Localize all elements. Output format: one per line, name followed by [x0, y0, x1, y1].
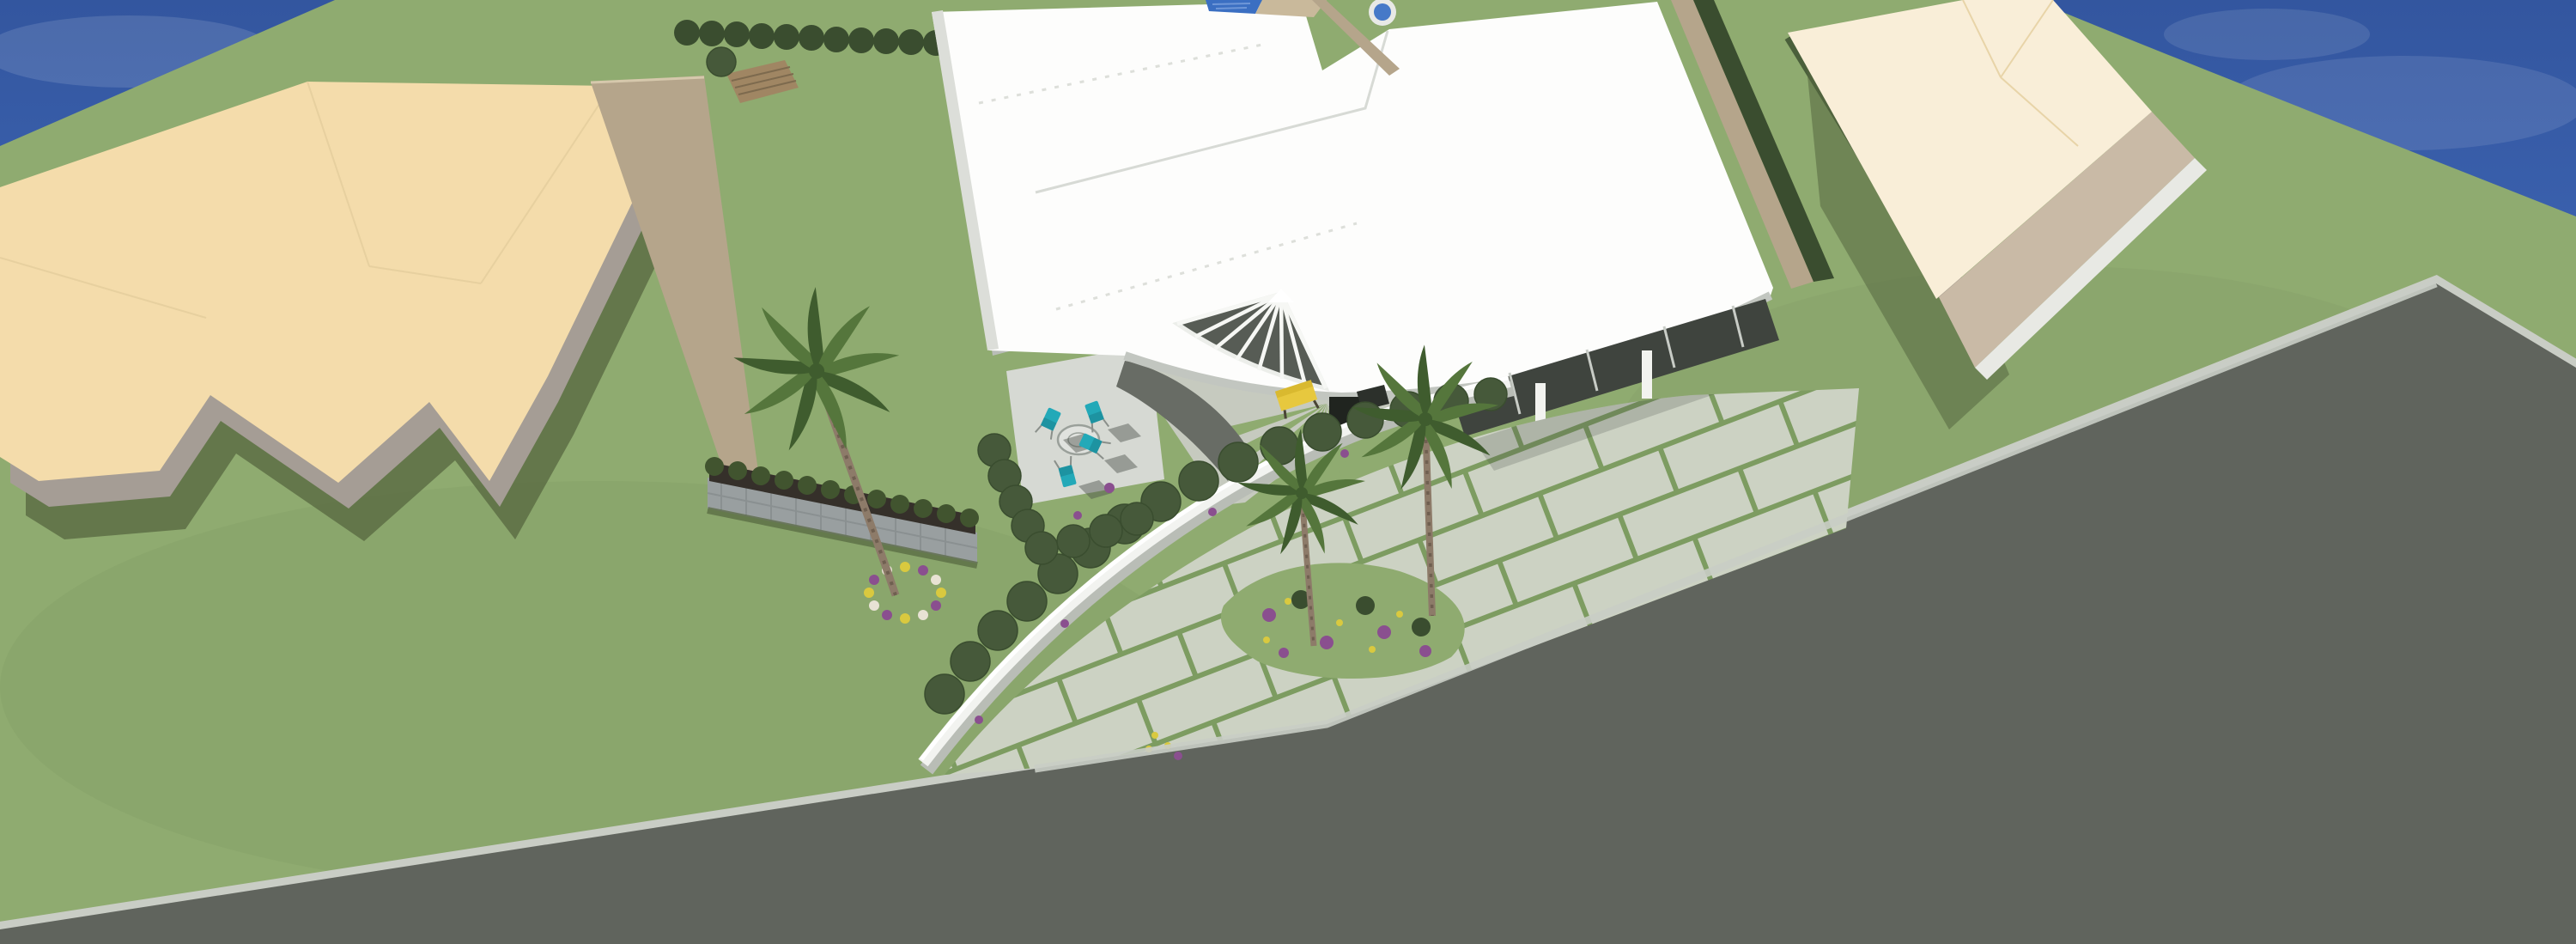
canopy-pillar	[1642, 350, 1652, 399]
cloud	[2164, 9, 2370, 60]
shrub	[707, 47, 736, 76]
render-canvas: Aerial 3D architectural render of a mode…	[0, 0, 2576, 944]
scene-render: Aerial 3D architectural render of a mode…	[0, 0, 2576, 944]
